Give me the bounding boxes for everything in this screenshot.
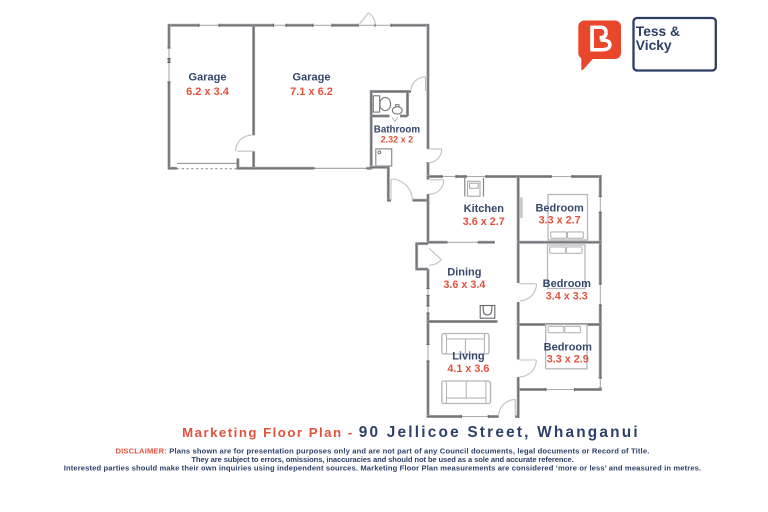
svg-text:2.32 x 2: 2.32 x 2 [381,134,414,144]
svg-text:Tess &: Tess & [636,24,680,39]
svg-text:Living: Living [452,351,484,363]
svg-text:4.1 x 3.6: 4.1 x 3.6 [447,363,489,375]
svg-text:Dining: Dining [447,267,481,279]
svg-text:3.3 x 2.7: 3.3 x 2.7 [539,214,581,226]
svg-text:Marketing Floor Plan - 90 Jell: Marketing Floor Plan - 90 Jellicoe Stree… [182,424,640,441]
svg-text:Vicky: Vicky [636,38,672,53]
svg-text:3.6 x 2.7: 3.6 x 2.7 [463,216,505,228]
svg-text:Bedroom: Bedroom [543,278,592,290]
svg-text:3.6 x 3.4: 3.6 x 3.4 [443,279,485,291]
svg-text:Bedroom: Bedroom [535,203,584,215]
svg-text:They are subject to errors, om: They are subject to errors, omissions, i… [191,455,573,464]
svg-text:7.1 x 6.2: 7.1 x 6.2 [290,86,333,98]
svg-text:3.4 x 3.3: 3.4 x 3.3 [546,290,588,302]
svg-text:Garage: Garage [293,71,331,83]
svg-text:3.3 x 2.9: 3.3 x 2.9 [547,354,589,366]
svg-text:Garage: Garage [189,71,227,83]
svg-text:Bedroom: Bedroom [544,341,593,353]
svg-text:6.2 x 3.4: 6.2 x 3.4 [186,86,230,98]
svg-text:Kitchen: Kitchen [464,203,505,215]
svg-text:Interested parties should make: Interested parties should make their own… [64,464,702,473]
